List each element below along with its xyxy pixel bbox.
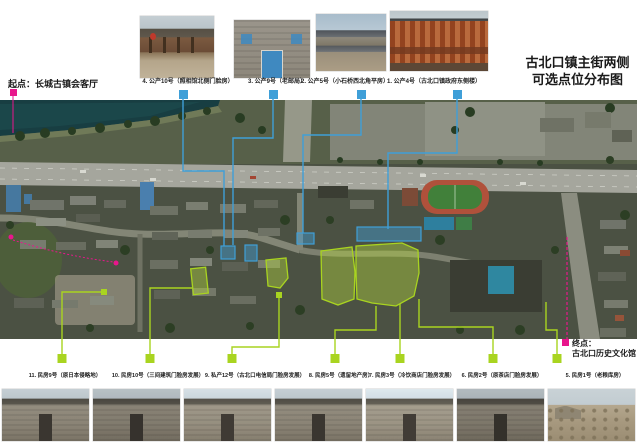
marker-site-3: [269, 90, 278, 99]
page-title: 古北口镇主街两侧 可选点位分布图: [518, 54, 637, 88]
photo-site-9: [184, 389, 271, 441]
end-point-label: 终点： 古北口历史文化馆: [572, 339, 636, 359]
poster: 古北口镇主街两侧 可选点位分布图 起点：长城古镇会客厅 终点： 古北口历史文化馆…: [0, 0, 637, 443]
marker-site-4: [179, 90, 188, 99]
end-label-line1: 终点：: [572, 339, 636, 349]
photo-caption-site-9: 9. 私产12号（古北口电信局门脸房发展）: [205, 371, 305, 379]
photo-caption-site-7: 7. 民房3号（冷饮商店门脸房发展）: [369, 371, 455, 379]
satellite-map: [0, 100, 637, 339]
end-label-line2: 古北口历史文化馆: [572, 349, 636, 359]
map-highlight-site-10: [191, 267, 209, 294]
photo-site-10: [93, 389, 180, 441]
start-point-label: 起点：长城古镇会客厅: [8, 77, 98, 90]
marker-site-10: [146, 354, 155, 363]
pool: [488, 266, 514, 294]
end-marker: [562, 339, 569, 346]
photo-site-6: [457, 389, 544, 441]
marker-site-2: [357, 90, 366, 99]
photo-caption-site-4: 4. 公产10号（照相馆北侧门脸房）: [142, 76, 233, 85]
marker-site-11: [58, 354, 67, 363]
marker-site-9: [228, 354, 237, 363]
photo-site-7: [366, 389, 453, 441]
photo-site-5: [548, 389, 635, 441]
map-highlight-site-8: [321, 247, 355, 305]
map-highlight-site-2: [297, 233, 314, 244]
blue-court: [424, 217, 454, 230]
marker-site-8: [331, 354, 340, 363]
map-highlight-site-1: [357, 227, 421, 241]
cross-road: [283, 100, 312, 162]
photo-site-3: [234, 20, 310, 78]
photo-site-1: [390, 11, 488, 71]
marker-site-1: [453, 90, 462, 99]
map-highlight-site-3: [245, 245, 257, 261]
photo-caption-site-6: 6. 民房2号（原茶店门脸房发展）: [462, 371, 543, 379]
marker-site-5: [553, 354, 562, 363]
title-line1: 古北口镇主街两侧: [518, 54, 637, 71]
photo-caption-site-1: 1. 公产4号（古北口镇政府东侧楼）: [387, 76, 481, 85]
title-line2: 可选点位分布图: [518, 71, 637, 88]
photo-caption-site-8: 8. 民房5号（遗留地产房）: [309, 371, 373, 379]
map-highlight-site-4: [221, 246, 235, 259]
photo-caption-site-3: 3. 公产9号（老邮局）: [248, 76, 306, 85]
marker-site-6: [489, 354, 498, 363]
photo-site-4: [140, 16, 214, 78]
photo-caption-site-2: 2. 公产5号（小石桥西北角平房）: [301, 76, 389, 85]
photo-caption-site-5: 5. 民房1号（老粮库房）: [566, 371, 625, 379]
photo-site-8: [275, 389, 362, 441]
blue-markers: [179, 90, 462, 99]
start-marker: [10, 89, 17, 96]
photo-site-11: [2, 389, 89, 441]
photo-site-2: [316, 14, 386, 71]
map-highlight-site-7: [356, 243, 419, 306]
photo-caption-site-10: 10. 民房10号（三间建筑门脸房发展）: [112, 371, 204, 379]
marker-site-7: [396, 354, 405, 363]
photo-caption-site-11: 11. 民房9号（原日本侵略地）: [29, 371, 101, 379]
